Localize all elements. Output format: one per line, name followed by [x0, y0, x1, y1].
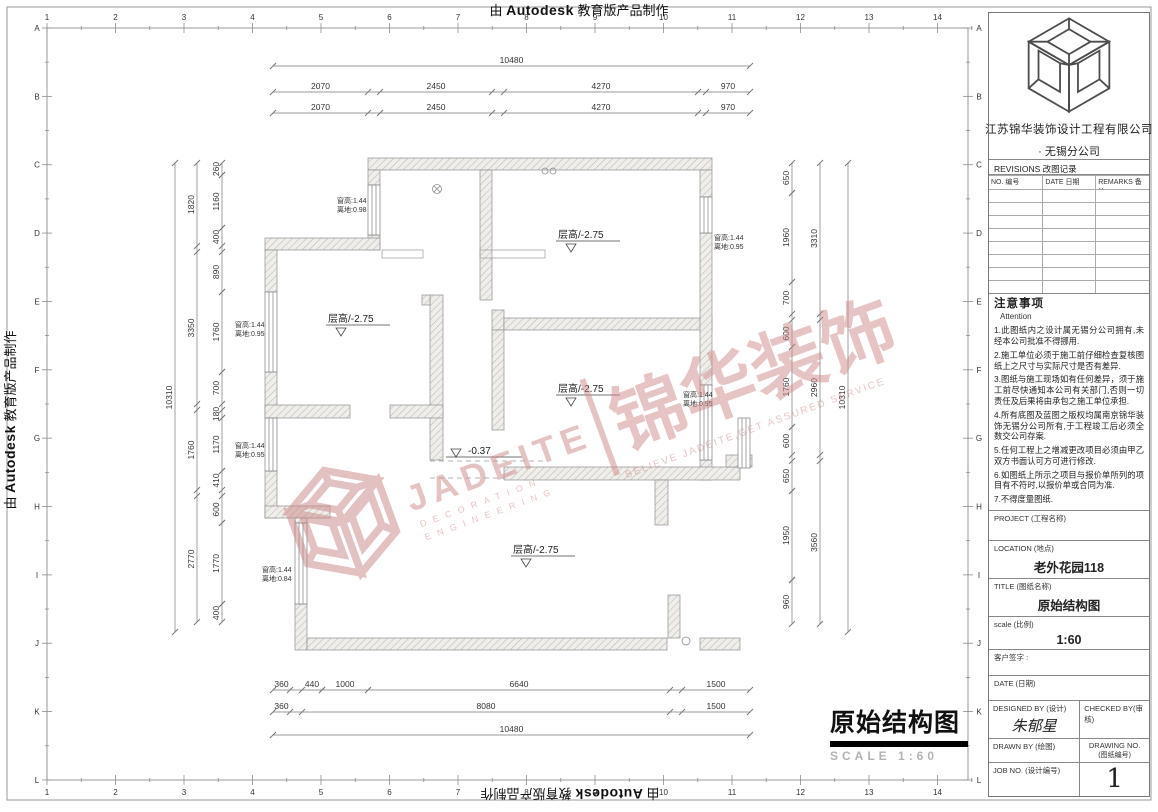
window-height-label: 窗高:1.44	[235, 441, 265, 450]
client-signature-section: 客户签字 :	[989, 650, 1149, 677]
grid-row-label: L	[977, 776, 982, 785]
dimension-label: 1000	[336, 679, 355, 689]
revisions-table-header: NO. 编号DATE 日期REMARKS 备注	[989, 175, 1149, 189]
dimension-label: 260	[211, 162, 221, 176]
dimension-chain: 10480	[270, 724, 753, 738]
grid-col-label: 1	[45, 788, 50, 797]
grid-col-label: 3	[182, 13, 187, 22]
dimension-label: 10480	[500, 724, 524, 734]
dimension-label: 1820	[186, 195, 196, 214]
dimension-label: 3560	[809, 533, 819, 552]
grid-row-label: C	[976, 161, 982, 170]
project-section: PROJECT (工程名称)	[989, 511, 1149, 541]
grid-col-label: 6	[387, 788, 392, 797]
dimension-chain: 207024504270970	[270, 102, 753, 116]
grid-col-label: 4	[250, 13, 255, 22]
room-level-label: 层高/-2.75	[558, 228, 604, 241]
sheet-title-value: 原始结构图	[994, 595, 1144, 614]
dimension-chain: 36080801500	[270, 701, 753, 715]
grid-col-label: 1	[45, 13, 50, 22]
location-value: 老外花园118	[994, 557, 1144, 576]
dimension-label: 1770	[211, 554, 221, 573]
grid-row-label: F	[35, 366, 40, 375]
grid-row-label: D	[976, 229, 982, 238]
scale-value: 1:60	[994, 633, 1144, 647]
dimension-label: 2070	[311, 102, 330, 112]
dimension-chain: 10310	[164, 160, 178, 635]
sheet-title-section: TITLE (图纸名称) 原始结构图	[989, 579, 1149, 617]
dimension-label: 1160	[211, 192, 221, 211]
revisions-table: NO. 编号DATE 日期REMARKS 备注	[989, 175, 1149, 294]
window-height-label: 离地:0.98	[337, 205, 367, 214]
dimension-label: 700	[781, 291, 791, 305]
attention-notes: 注意事项 Attention 1.此图纸内之设计属无锡分公司拥有,未经本公司批准…	[989, 294, 1149, 511]
dimension-label: 180	[211, 407, 221, 421]
revisions-col-header: DATE 日期	[1043, 175, 1096, 189]
dimension-label: 3350	[186, 318, 196, 337]
grid-col-label: 3	[182, 788, 187, 797]
dimension-label: 1170	[211, 435, 221, 454]
revisions-empty-row	[989, 215, 1149, 228]
room-level-label: 层高/-2.75	[328, 312, 374, 325]
grid-row-label: F	[977, 366, 982, 375]
dimension-label: 650	[781, 469, 791, 483]
attention-note: 4.所有底图及蓝图之版权均属南京锦华装饰无锡分公司所有,于工程竣工后必须全数交公…	[994, 410, 1144, 442]
dimension-label: 1950	[781, 526, 791, 545]
grid-row-label: E	[976, 297, 981, 306]
grid-row-label: K	[34, 708, 40, 717]
revisions-empty-row	[989, 267, 1149, 280]
grid-row-label: D	[34, 229, 40, 238]
grid-row-label: I	[978, 571, 980, 580]
dimension-label: 1960	[781, 228, 791, 247]
grid-col-label: 2	[113, 788, 118, 797]
dimension-label: 1760	[211, 322, 221, 341]
room-level-label: 层高/-2.75	[513, 543, 559, 556]
attention-note: 1.此图纸内之设计属无锡分公司拥有,未经本公司批准不得挪用.	[994, 325, 1144, 347]
scale-section: scale (比例) 1:60	[989, 617, 1149, 650]
sheet-outer-border	[7, 7, 1151, 800]
dimension-label: 440	[305, 679, 319, 689]
dimension-label: 2770	[186, 549, 196, 568]
checked-by-cell: CHECKED BY(审核)	[1080, 701, 1149, 739]
job-no-cell: JOB NO. (设计编号)	[989, 763, 1080, 796]
revisions-empty-row	[989, 280, 1149, 293]
window-height-label: 窗高:1.44	[714, 233, 744, 242]
grid-col-label: 11	[728, 13, 737, 22]
dimension-label: 1500	[707, 679, 726, 689]
drawing-no-cell: DRAWING NO. (图纸编号)	[1080, 739, 1149, 763]
revisions-empty-row	[989, 241, 1149, 254]
grid-col-label: 13	[865, 788, 874, 797]
attention-note: 6.如图纸上所示之项目与报价单所列的项目有不符时,以报价单或合同为准.	[994, 470, 1144, 492]
window-height-label: 窗高:1.44	[262, 565, 292, 574]
grid-row-label: A	[976, 24, 982, 33]
attention-note: 2.施工单位必须于施工前仔细检查复核图纸上之尺寸与实际尺寸是否有差异.	[994, 350, 1144, 372]
grid-col-label: 12	[796, 788, 805, 797]
dimension-label: 410	[211, 473, 221, 487]
grid-col-label: 4	[250, 788, 255, 797]
grid-row-label: I	[36, 571, 38, 580]
drawing-no-value-cell: 1	[1080, 763, 1149, 796]
grid-row-label: B	[34, 92, 39, 101]
grid-row-label: E	[34, 297, 39, 306]
grid-row-label: J	[977, 639, 981, 648]
dimension-label: 2450	[427, 102, 446, 112]
window-symbol	[265, 418, 277, 471]
dimension-label: 10480	[500, 55, 524, 65]
grid-row-label: B	[976, 92, 981, 101]
company-name: 江苏锦华装饰设计工程有限公司	[985, 121, 1153, 137]
grid-col-label: 13	[865, 13, 874, 22]
company-cube-logo	[1017, 13, 1121, 117]
dimension-label: 10310	[164, 385, 174, 409]
window-height-label: 离地:0.95	[714, 242, 744, 251]
drawn-by-cell: DRAWN BY (绘图)	[989, 739, 1080, 763]
company-logo-section: 江苏锦华装饰设计工程有限公司 · 无锡分公司	[989, 13, 1149, 160]
window-height-label: 离地:0.84	[262, 574, 292, 583]
notes-title: 注意事项	[994, 297, 1144, 312]
banner-brand: Autodesk	[506, 2, 574, 18]
company-branch: · 无锡分公司	[1038, 143, 1100, 159]
dimension-label: 1500	[707, 701, 726, 711]
dimension-label: 4270	[592, 81, 611, 91]
revisions-empty-row	[989, 189, 1149, 202]
door-openings	[382, 250, 545, 258]
dimension-label: 400	[211, 606, 221, 620]
revisions-empty-row	[989, 254, 1149, 267]
dimension-label: 3310	[809, 229, 819, 248]
grid-row-label: H	[34, 503, 40, 512]
location-section: LOCATION (地点) 老外花园118	[989, 541, 1149, 579]
window-symbol	[700, 197, 712, 233]
grid-row-label: H	[976, 503, 982, 512]
grid-row-label: A	[34, 24, 40, 33]
grid-col-label: 14	[933, 13, 942, 22]
banner-suffix: 教育版产品制作	[578, 3, 669, 18]
window-height-label: 离地:0.95	[235, 450, 265, 459]
date-section: DATE (日期)	[989, 676, 1149, 701]
title-block: 江苏锦华装饰设计工程有限公司 · 无锡分公司 REVISIONS 改图记录 NO…	[988, 12, 1150, 797]
designer-signature: 朱郁星	[993, 715, 1075, 736]
dimension-chain: 2601160400890176070018011704106001770400	[211, 160, 225, 625]
watermark-brand-cn: 锦华装饰	[600, 285, 907, 464]
attention-note: 7.不得度量图纸.	[994, 494, 1144, 505]
window-height-label: 窗高:1.44	[235, 320, 265, 329]
autodesk-banner-bottom: 由 Autodesk 教育版产品制作	[445, 786, 695, 804]
dimension-label: 6640	[510, 679, 529, 689]
autodesk-banner-top: 由 Autodesk 教育版产品制作	[449, 0, 709, 18]
grid-row-label: G	[34, 434, 40, 443]
window-symbol	[368, 185, 380, 235]
notes-subtitle: Attention	[1000, 312, 1144, 322]
grid-col-label: 2	[113, 13, 118, 22]
grid-row-label: J	[35, 639, 39, 648]
dimension-label: 360	[274, 701, 288, 711]
dimension-label: 8080	[477, 701, 496, 711]
dimension-chain: 207024504270970	[270, 81, 753, 95]
autodesk-banner-left: 由 Autodesk 教育版产品制作	[0, 290, 20, 550]
dimension-label: 2450	[427, 81, 446, 91]
grid-row-label: K	[976, 708, 982, 717]
dimension-chain: 360440100066401500	[270, 679, 753, 693]
grid-row-label: G	[976, 434, 982, 443]
dimension-chain: 10480	[270, 55, 753, 69]
window-height-label: 窗高:1.44	[337, 196, 367, 205]
cad-sheet: { "edge": {"prefix": "由", "brand": "Auto…	[0, 0, 1158, 807]
dimension-label: 650	[781, 171, 791, 185]
drawing-number: 1	[1084, 765, 1145, 794]
revisions-header: REVISIONS 改图记录	[989, 160, 1149, 175]
drawing-title-text: 原始结构图	[830, 703, 968, 739]
dimension-label: 970	[721, 81, 735, 91]
grid-col-label: 5	[319, 788, 324, 797]
grid-col-label: 12	[796, 13, 805, 22]
drawing-title-underline	[830, 741, 968, 747]
dimension-chain: 1820335017602770	[186, 160, 200, 625]
dimension-label: 600	[211, 502, 221, 516]
drawing-title-scale: SCALE 1:60	[830, 749, 968, 763]
dimension-label: 4270	[592, 102, 611, 112]
dimension-label: 400	[211, 230, 221, 244]
window-height-label: 离地:0.95	[235, 329, 265, 338]
dimension-label: 960	[781, 595, 791, 609]
window-symbol	[265, 292, 277, 372]
drawing-title: 原始结构图 SCALE 1:60	[830, 703, 968, 763]
grid-col-label: 6	[387, 13, 392, 22]
revisions-col-header: NO. 编号	[989, 175, 1043, 189]
grid-col-label: 11	[728, 788, 737, 797]
grid-col-label: 14	[933, 788, 942, 797]
dimension-label: 970	[721, 102, 735, 112]
dimension-label: 600	[781, 434, 791, 448]
revisions-empty-row	[989, 228, 1149, 241]
revisions-col-header: REMARKS 备注	[1096, 175, 1149, 189]
dimension-label: 2070	[311, 81, 330, 91]
designed-by-cell: DESIGNED BY (设计) 朱郁星	[989, 701, 1080, 739]
dimension-label: 700	[211, 381, 221, 395]
banner-prefix: 由	[489, 3, 502, 18]
grid-col-label: 5	[319, 13, 324, 22]
attention-note: 3.图纸与施工现场如有任何差异，须于施工前尽快通知本公司有关部门,否则一切责任及…	[994, 374, 1144, 406]
dimension-label: 360	[274, 679, 288, 689]
dimension-label: 1760	[186, 440, 196, 459]
grid-row-label: L	[35, 776, 40, 785]
dimension-label: 890	[211, 265, 221, 279]
attention-note: 5.任何工程上之增减更改项目必须由甲乙双方书面认可方可进行修改.	[994, 445, 1144, 467]
revisions-empty-row	[989, 202, 1149, 215]
credits-grid: DESIGNED BY (设计) 朱郁星 CHECKED BY(审核) DRAW…	[989, 701, 1149, 796]
grid-row-label: C	[34, 161, 40, 170]
